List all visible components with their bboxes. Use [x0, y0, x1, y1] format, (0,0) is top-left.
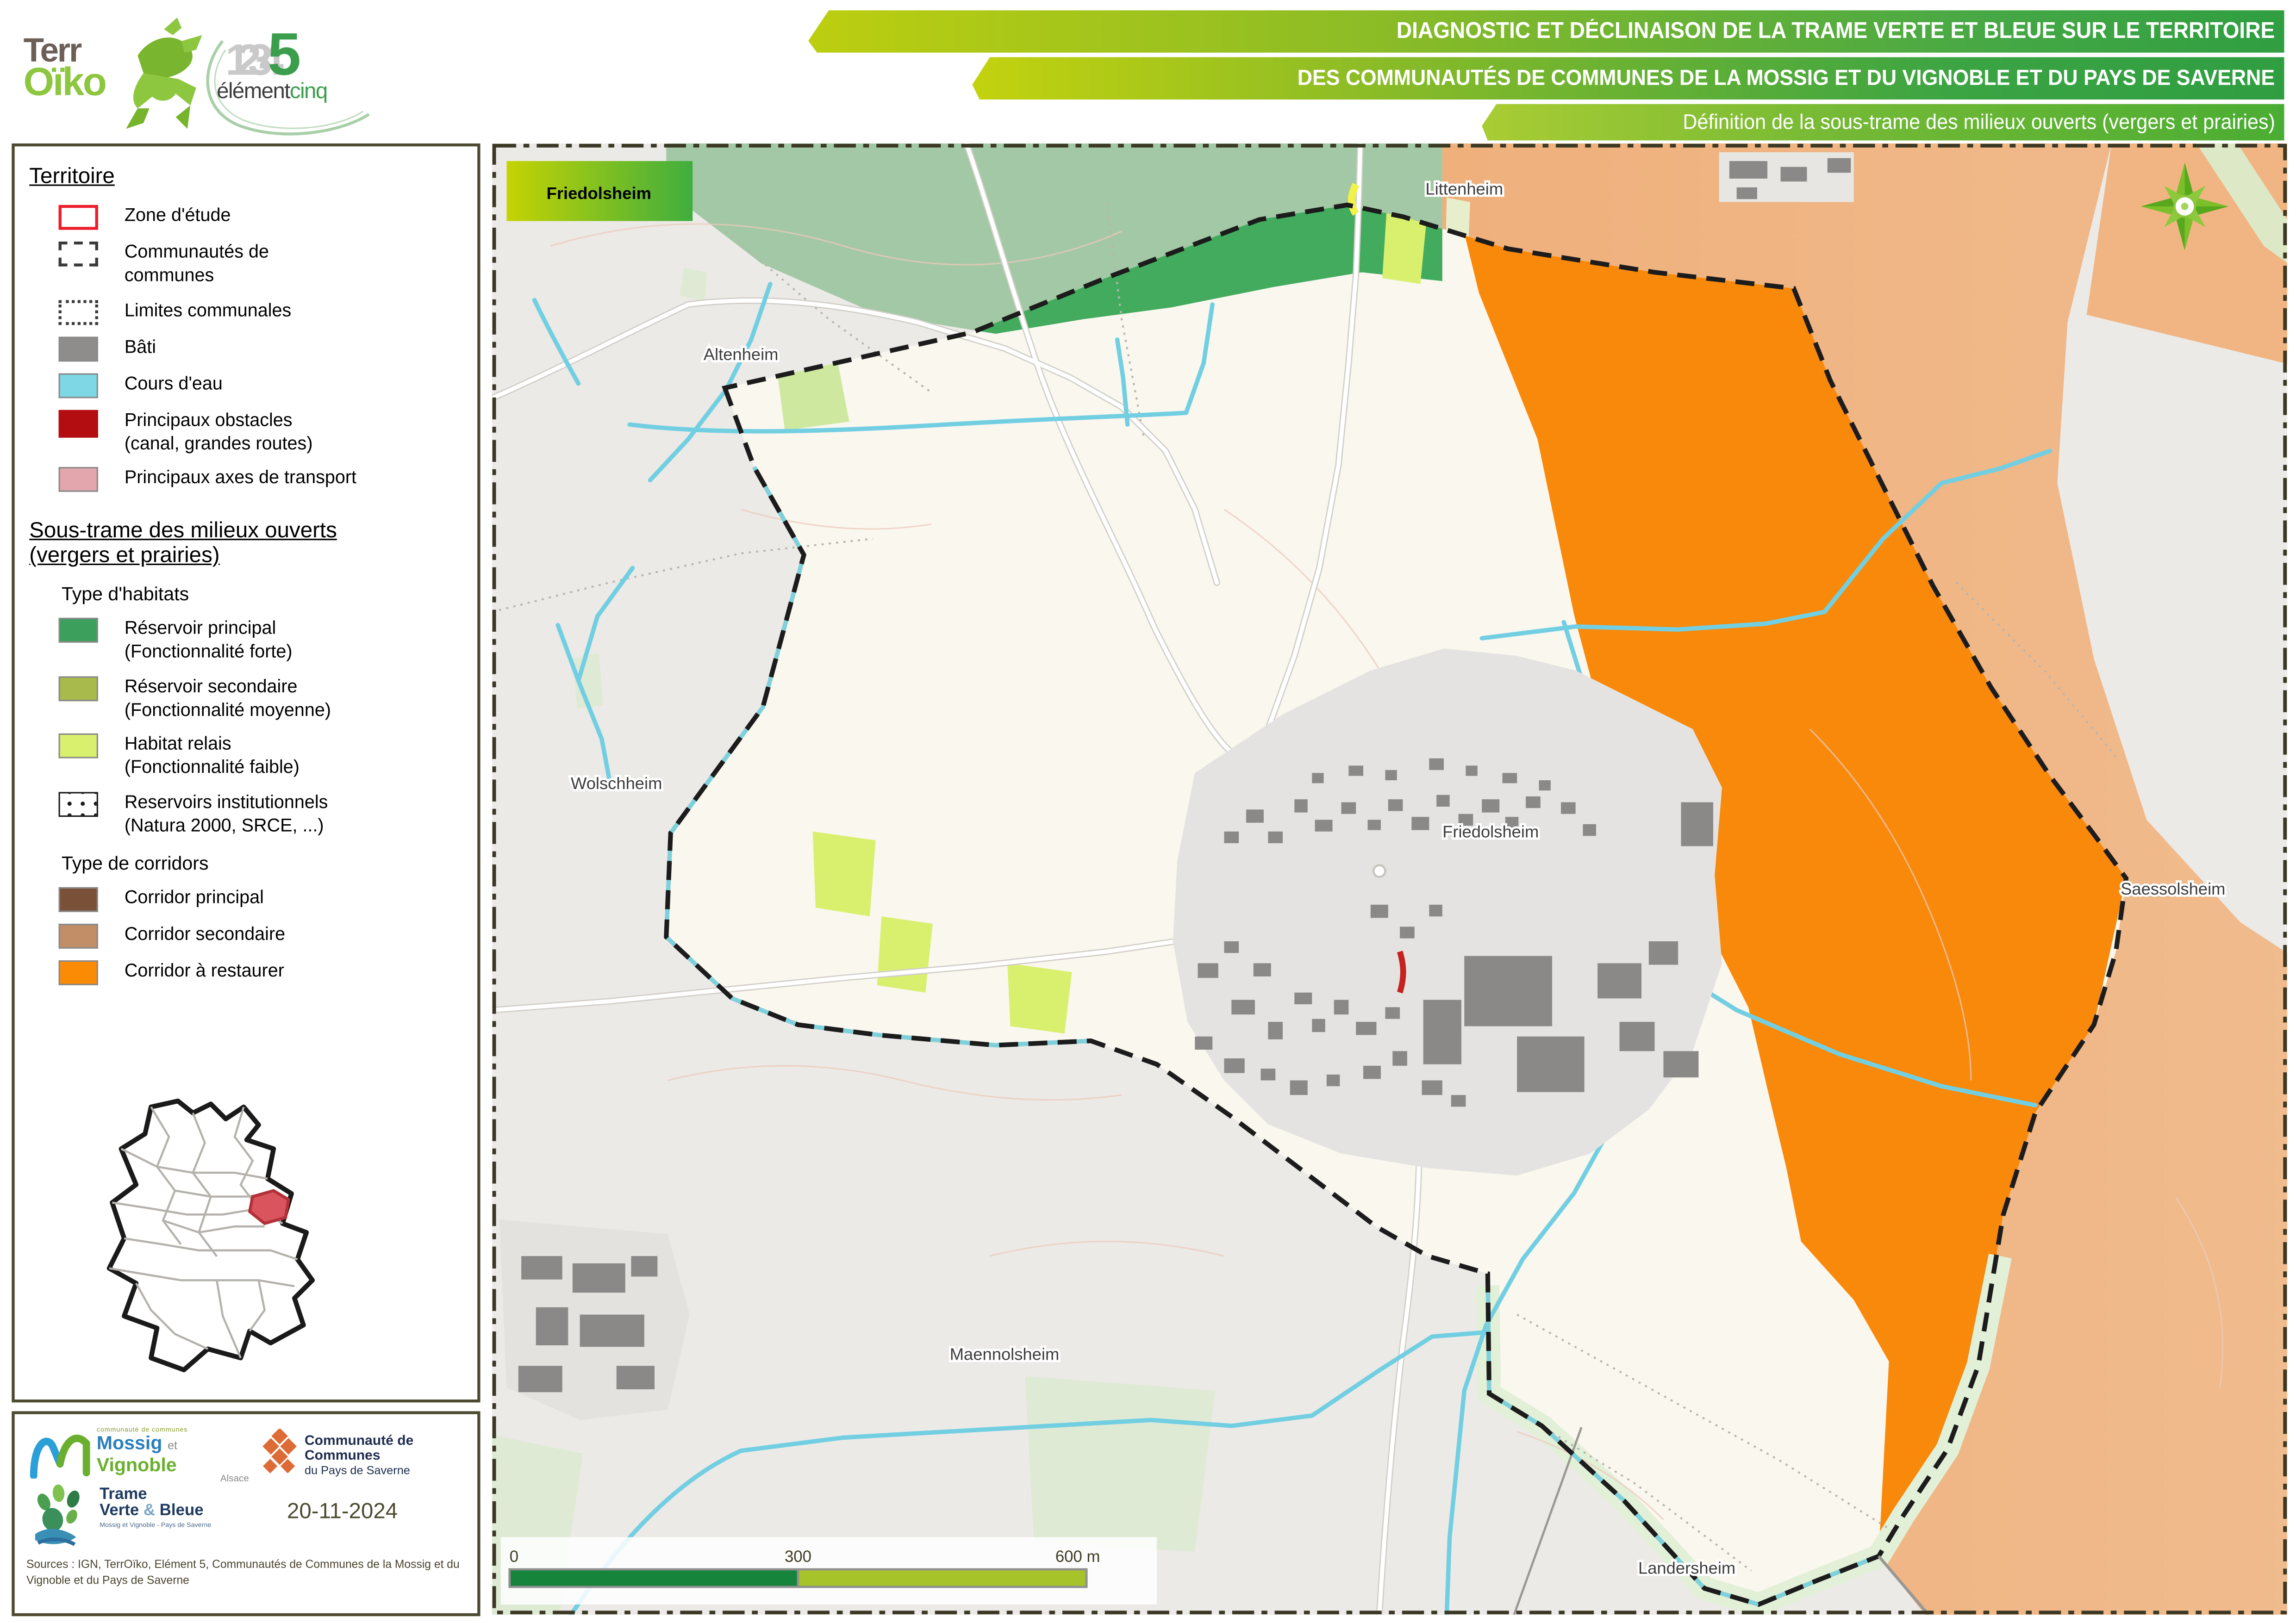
terroiko-text-oiko: Oïko — [24, 64, 106, 99]
terroiko-logo: Terr Oïko — [24, 15, 214, 132]
element5-five: 5 — [268, 20, 301, 88]
habitat-bright-3 — [1007, 963, 1072, 1033]
legend-item-bati: Bâti — [59, 335, 466, 361]
legend-item-zone-etude: Zone d'étude — [59, 204, 466, 230]
habitat-bright-1 — [813, 832, 876, 916]
legend-item-communautes: Communautés decommunes — [59, 240, 466, 288]
legend-item-habitat-relais: Habitat relais(Fonctionnalité faible) — [59, 732, 466, 780]
element5-word: élément — [217, 79, 290, 104]
map-date: 20-11-2024 — [287, 1499, 398, 1524]
label-maennolsheim: Maennolsheim — [950, 1345, 1059, 1364]
corridor-principal-swatch — [59, 887, 98, 912]
zone-etude-swatch — [59, 205, 98, 230]
legend-item-obstacles: Principaux obstacles(canal, grandes rout… — [59, 408, 466, 455]
element5-logo: 12345 élémentcinq — [205, 18, 381, 135]
legend-item-reservoirs-institutionnels: Reservoirs institutionnels(Natura 2000, … — [59, 790, 466, 838]
reservoirs-institutionnels-swatch — [59, 791, 98, 816]
map-document: Terr Oïko 12345 élémentcinq DIAGNOSTIC E… — [0, 0, 2296, 1623]
scale-0: 0 — [510, 1548, 518, 1566]
scale-bar: 0 300 600 m — [501, 1537, 1157, 1604]
banner-title-line1: DIAGNOSTIC ET DÉCLINAISON DE LA TRAME VE… — [808, 10, 2284, 53]
pays-saverne-logo: Communauté de Communes du Pays de Savern… — [261, 1429, 474, 1477]
mossig-vignoble-logo: communauté de communes Mossig et Vignobl… — [29, 1426, 249, 1485]
map-title-box: Friedolsheim — [506, 161, 693, 221]
legend-item-corridor-restaurer: Corridor à restaurer — [59, 959, 466, 985]
legend-soustrame-title: Sous-trame des milieux ouverts(vergers e… — [29, 518, 466, 568]
label-saessolsheim: Saessolsheim — [2121, 879, 2225, 898]
legend-item-cours-eau: Cours d'eau — [59, 371, 466, 398]
tvb-logo: Trame Verte & Bleue Mossig et Vignoble -… — [32, 1485, 267, 1529]
mossig-m-icon — [29, 1429, 91, 1479]
obstacles-swatch — [59, 409, 98, 437]
scale-300: 300 — [785, 1548, 811, 1566]
main-map: Altenheim Littenheim Wolschheim Friedols… — [492, 143, 2287, 1615]
legend-item-reservoir-secondaire: Réservoir secondaire(Fonctionnalité moye… — [59, 674, 466, 722]
legend-panel: Territoire Zone d'étude Communautés deco… — [12, 143, 480, 1402]
corridor-secondaire-swatch — [59, 924, 98, 949]
legend-item-limites: Limites communales — [59, 298, 466, 324]
axes-transport-swatch — [59, 467, 98, 492]
cours-eau-swatch — [59, 373, 98, 398]
yellow-road-segment — [1352, 185, 1356, 214]
saverne-diamonds-icon — [261, 1429, 299, 1475]
reservoir-principal-swatch — [59, 618, 98, 643]
label-friedolsheim: Friedolsheim — [1442, 822, 1539, 841]
legend-item-corridor-secondaire: Corridor secondaire — [59, 922, 466, 949]
element5-digits: 1234 — [225, 37, 270, 85]
habitat-pale-2 — [680, 268, 707, 302]
banner-subtitle: Définition de la sous-trame des milieux … — [1482, 104, 2284, 141]
legend-item-reservoir-principal: Réservoir principal(Fonctionnalité forte… — [59, 616, 466, 664]
habitat-relais-swatch — [59, 734, 98, 759]
map-title-text: Friedolsheim — [547, 184, 651, 203]
legend-territoire-title: Territoire — [29, 164, 466, 189]
label-wolschheim: Wolschheim — [571, 774, 662, 793]
label-landersheim: Landersheim — [1638, 1559, 1735, 1578]
habitat-pale-3 — [1025, 1376, 1215, 1552]
legend-habitats-subtitle: Type d'habitats — [62, 583, 466, 604]
limites-swatch — [59, 299, 98, 324]
corridor-restaurer-swatch — [59, 960, 98, 985]
legend-item-axes-transport: Principaux axes de transport — [59, 466, 466, 492]
label-littenheim: Littenheim — [1425, 180, 1503, 199]
scale-600: 600 m — [1055, 1548, 1100, 1566]
sources-text: Sources : IGN, TerrOïko, Elément 5, Comm… — [26, 1558, 477, 1589]
map-canvas: Altenheim Littenheim Wolschheim Friedols… — [492, 143, 2287, 1615]
habitat-bright-2 — [877, 916, 933, 992]
element5-cinq: cinq — [290, 79, 327, 104]
communautes-swatch — [59, 242, 98, 267]
obstacle-segment — [1400, 951, 1403, 993]
inset-locator-map — [85, 1095, 414, 1388]
legend-item-corridor-principal: Corridor principal — [59, 886, 466, 912]
credits-panel: communauté de communes Mossig et Vignobl… — [12, 1411, 480, 1616]
reservoir-secondaire-swatch — [59, 676, 98, 701]
legend-corridors-subtitle: Type de corridors — [62, 852, 466, 874]
bati-swatch — [59, 336, 98, 361]
banner-title-line2: DES COMMUNAUTÉS DE COMMUNES DE LA MOSSIG… — [972, 57, 2284, 99]
tvb-paw-icon — [32, 1485, 91, 1549]
label-altenheim: Altenheim — [704, 345, 779, 364]
roundabout — [1373, 865, 1385, 877]
